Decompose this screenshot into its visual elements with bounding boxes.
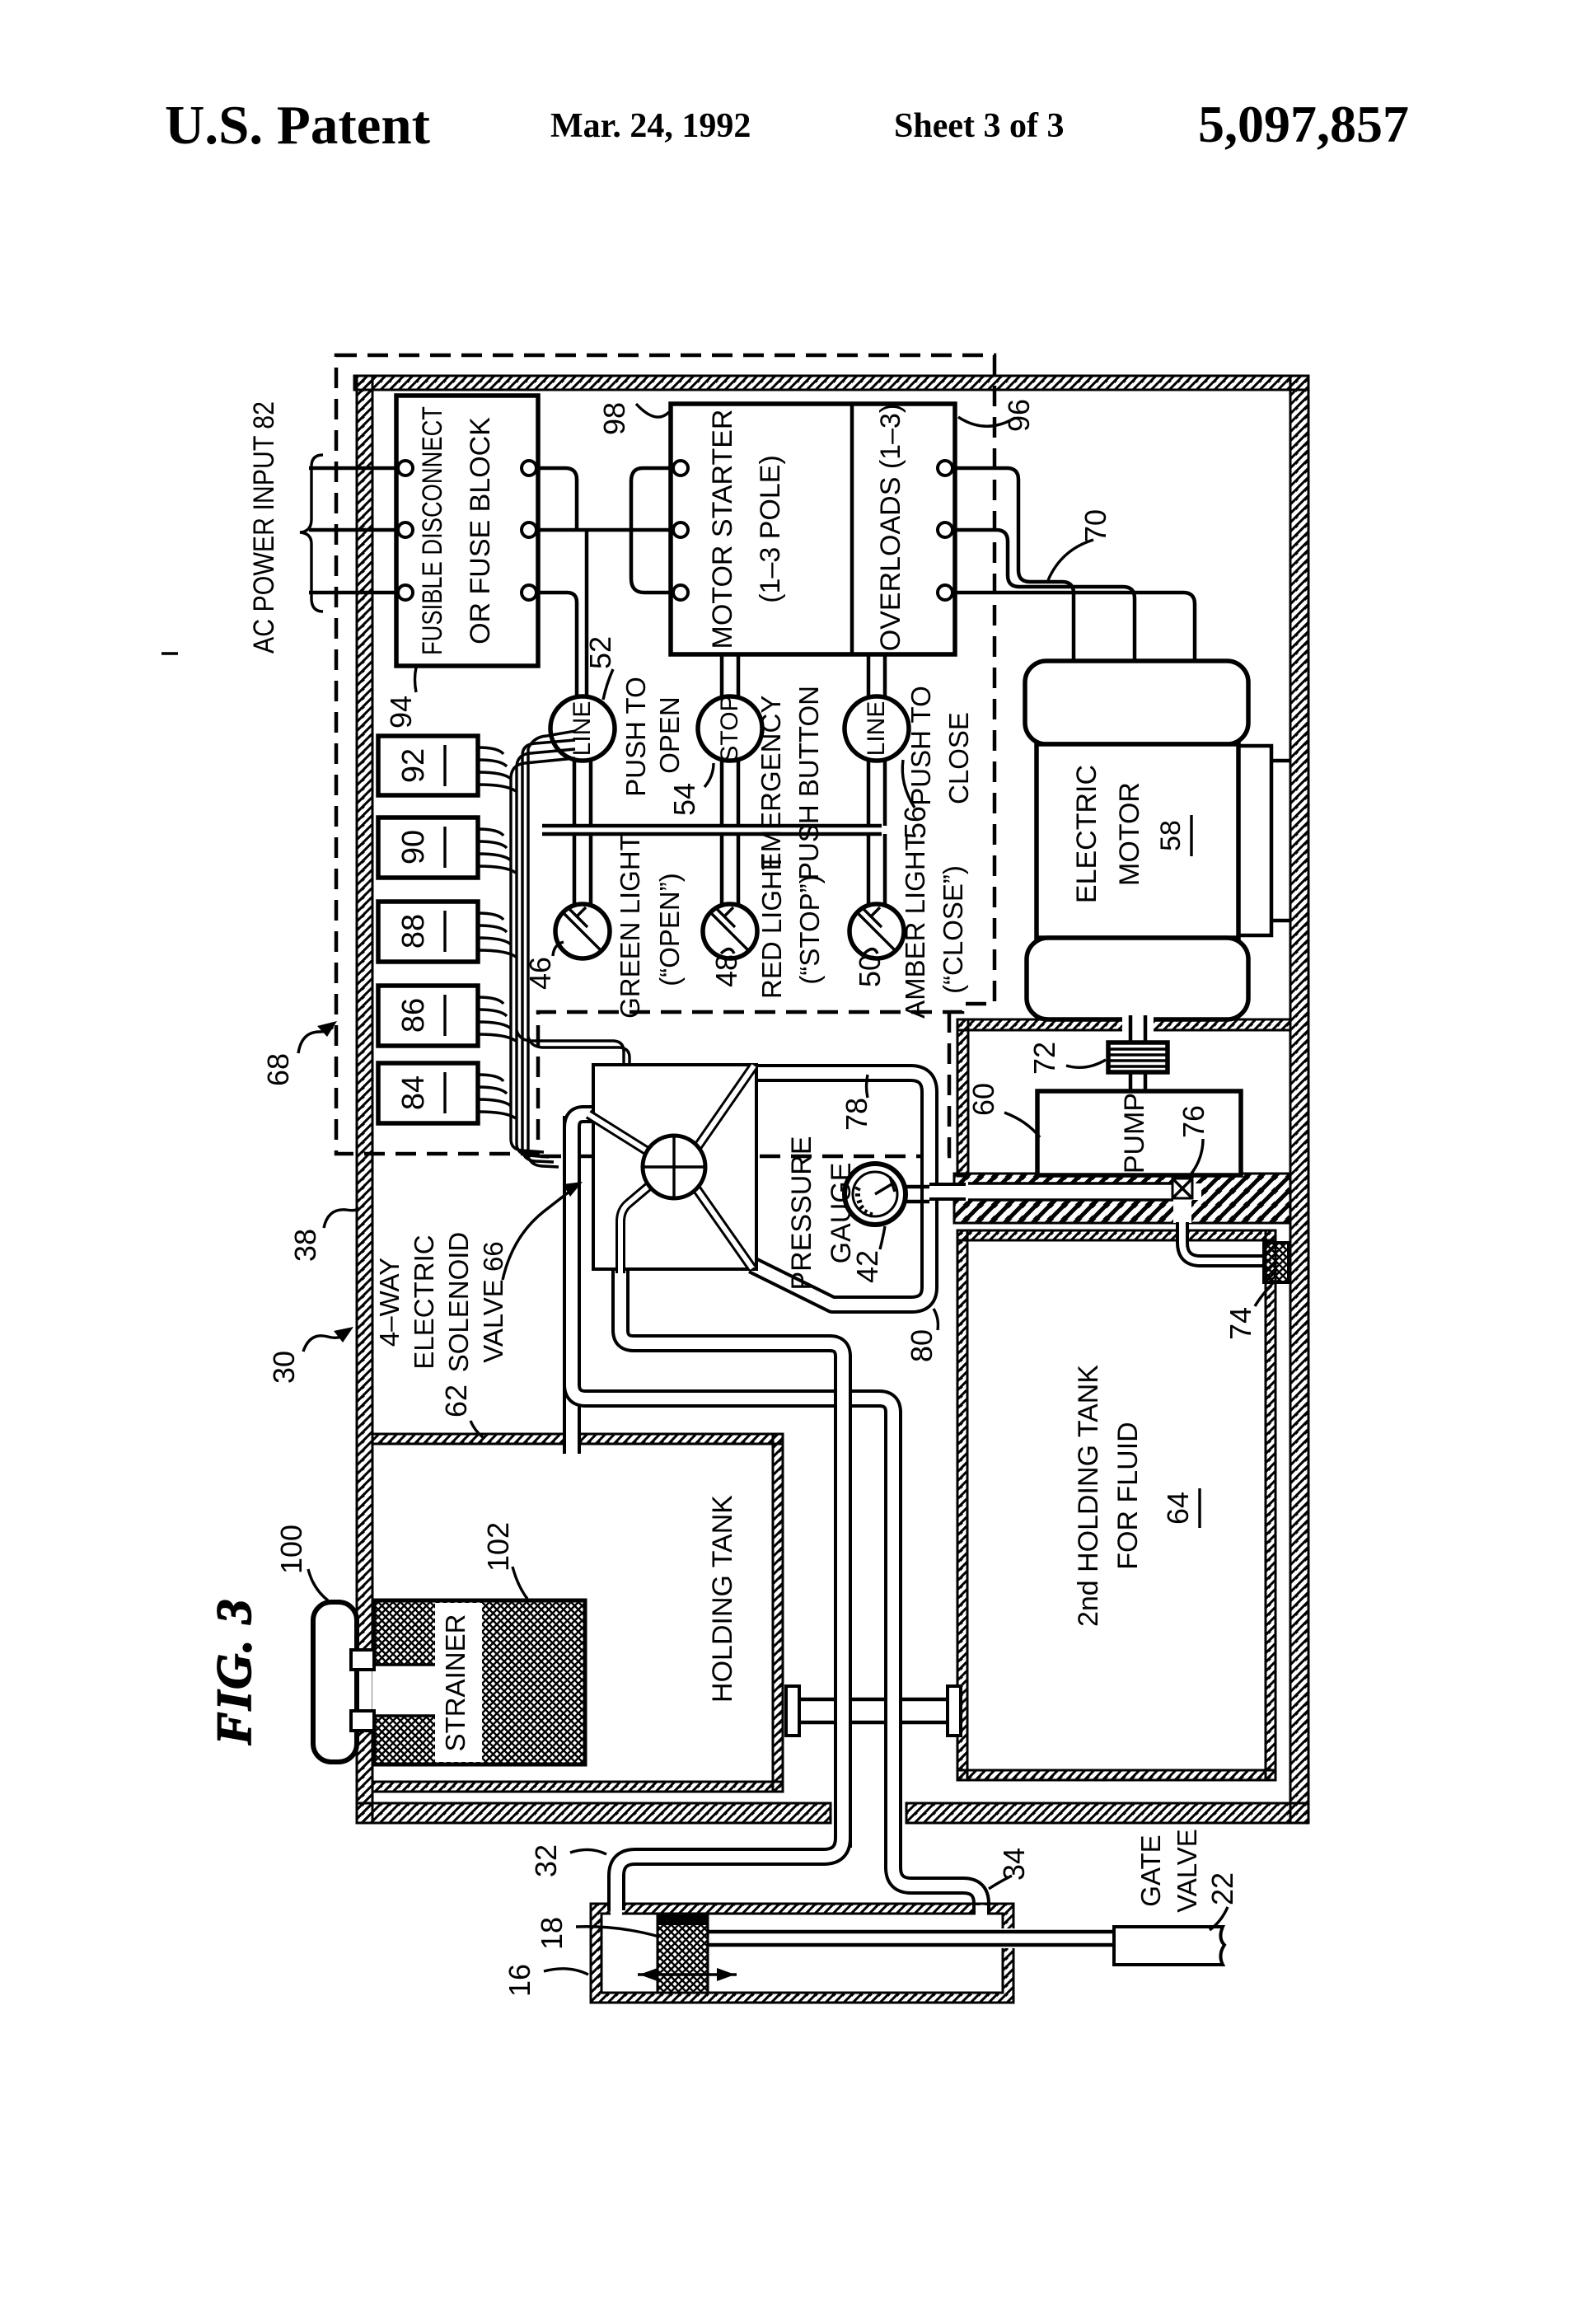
svg-text:PUMP: PUMP [1119, 1093, 1150, 1174]
svg-text:HOLDING TANK: HOLDING TANK [707, 1495, 738, 1703]
svg-text:80: 80 [905, 1329, 938, 1362]
svg-text:OVERLOADS (1–3): OVERLOADS (1–3) [875, 404, 906, 651]
svg-text:92: 92 [396, 748, 431, 783]
svg-text:(“OPEN”): (“OPEN”) [654, 873, 685, 986]
svg-text:94: 94 [384, 696, 418, 729]
svg-text:LINE: LINE [863, 701, 890, 757]
svg-text:MOTOR STARTER: MOTOR STARTER [707, 410, 738, 649]
svg-text:LINE: LINE [569, 701, 596, 757]
svg-text:90: 90 [396, 830, 431, 864]
svg-text:22: 22 [1205, 1872, 1239, 1905]
svg-text:AMBER LIGHT: AMBER LIGHT [900, 834, 930, 1019]
svg-text:32: 32 [529, 1844, 563, 1877]
svg-text:74: 74 [1224, 1307, 1257, 1340]
svg-text:STRAINER: STRAINER [440, 1614, 470, 1752]
svg-text:GATE: GATE [1135, 1834, 1166, 1906]
svg-text:(1–3 POLE): (1–3 POLE) [755, 455, 786, 603]
svg-text:PUSH BUTTON: PUSH BUTTON [793, 686, 824, 880]
svg-text:PUSH TO: PUSH TO [620, 677, 651, 797]
svg-text:62: 62 [439, 1385, 473, 1417]
svg-text:100: 100 [274, 1525, 308, 1574]
svg-text:98: 98 [597, 402, 631, 435]
svg-text:42: 42 [850, 1250, 884, 1283]
svg-text:ELECTRIC: ELECTRIC [409, 1235, 439, 1369]
svg-text:(“STOP”): (“STOP”) [794, 874, 825, 984]
svg-text:102: 102 [481, 1522, 515, 1572]
svg-text:OPEN: OPEN [654, 696, 685, 774]
svg-text:52: 52 [583, 636, 617, 669]
svg-text:RED LIGHT: RED LIGHT [756, 854, 787, 999]
svg-text:48: 48 [709, 954, 743, 987]
svg-text:88: 88 [396, 914, 431, 949]
svg-text:38: 38 [288, 1229, 322, 1262]
svg-text:FOR FLUID: FOR FLUID [1112, 1422, 1144, 1569]
svg-text:VALVE: VALVE [1172, 1829, 1202, 1913]
svg-text:68: 68 [261, 1053, 295, 1086]
svg-text:34: 34 [997, 1848, 1031, 1881]
svg-text:4–WAY: 4–WAY [374, 1258, 405, 1347]
svg-text:58: 58 [1155, 820, 1186, 851]
svg-text:16: 16 [503, 1964, 536, 1997]
svg-text:76: 76 [1177, 1105, 1210, 1138]
svg-text:46: 46 [523, 957, 557, 990]
svg-text:64: 64 [1161, 1492, 1195, 1525]
svg-text:CLOSE: CLOSE [943, 712, 974, 804]
svg-text:PUSH TO: PUSH TO [906, 686, 936, 806]
svg-text:2nd HOLDING TANK: 2nd HOLDING TANK [1073, 1365, 1104, 1627]
svg-text:ELECTRIC: ELECTRIC [1071, 765, 1102, 903]
svg-text:50: 50 [853, 954, 887, 987]
svg-text:FIG. 3: FIG. 3 [207, 1598, 261, 1746]
svg-text:OR FUSE BLOCK: OR FUSE BLOCK [465, 417, 496, 644]
svg-text:96: 96 [1002, 399, 1036, 432]
svg-text:Mar. 24, 1992: Mar. 24, 1992 [550, 107, 751, 145]
svg-text:78: 78 [840, 1098, 873, 1131]
svg-text:Sheet 3 of 3: Sheet 3 of 3 [894, 107, 1064, 145]
svg-text:STOP: STOP [716, 695, 743, 761]
svg-text:U.S. Patent: U.S. Patent [165, 95, 431, 156]
svg-text:FUSIBLE DISCONNECT: FUSIBLE DISCONNECT [417, 406, 448, 655]
svg-text:AC POWER INPUT 82: AC POWER INPUT 82 [248, 401, 280, 654]
svg-text:SOLENOID: SOLENOID [443, 1232, 474, 1373]
svg-text:30: 30 [267, 1351, 301, 1384]
svg-text:84: 84 [396, 1075, 431, 1110]
svg-text:56: 56 [898, 806, 932, 839]
svg-text:VALVE 66: VALVE 66 [478, 1241, 508, 1362]
svg-text:70: 70 [1079, 509, 1112, 542]
svg-text:86: 86 [396, 998, 431, 1033]
svg-text:5,097,857: 5,097,857 [1198, 95, 1409, 153]
svg-text:60: 60 [967, 1083, 1000, 1116]
svg-text:18: 18 [535, 1917, 569, 1950]
svg-text:(“CLOSE”): (“CLOSE”) [938, 865, 968, 994]
svg-text:GREEN LIGHT: GREEN LIGHT [615, 834, 645, 1019]
svg-text:EMERGENCY: EMERGENCY [756, 696, 786, 871]
svg-text:MOTOR: MOTOR [1114, 782, 1145, 886]
svg-text:72: 72 [1027, 1042, 1061, 1075]
svg-text:GAUGE: GAUGE [826, 1163, 857, 1264]
svg-text:PRESSURE: PRESSURE [786, 1136, 817, 1290]
svg-text:54: 54 [667, 783, 701, 816]
